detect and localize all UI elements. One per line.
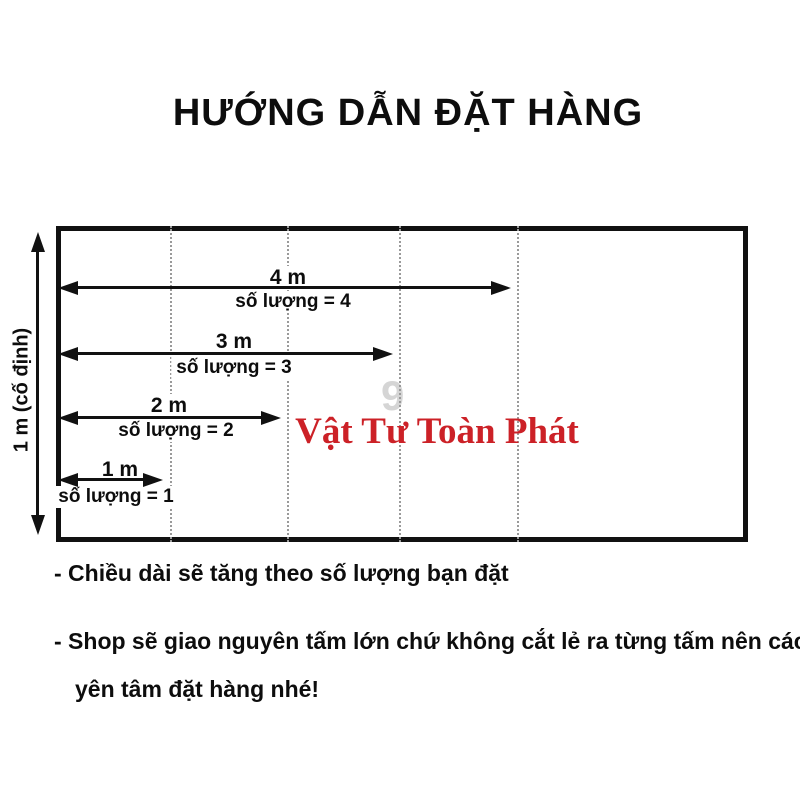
- arrowhead-right-icon: [261, 411, 281, 425]
- page-title: HƯỚNG DẪN ĐẶT HÀNG: [0, 92, 800, 135]
- arrowhead-right-icon: [491, 281, 511, 295]
- brand-watermark: Vật Tư Toàn Phát: [295, 410, 579, 453]
- arrow-shaft: [70, 286, 499, 289]
- note-line-1: - Chiều dài sẽ tăng theo số lượng bạn đặ…: [54, 560, 509, 587]
- arrow-shaft: [70, 352, 381, 355]
- measure-arrow-1m: [58, 473, 163, 487]
- arrow-shaft: [36, 244, 39, 523]
- arrowhead-right-icon: [373, 347, 393, 361]
- note-line-3: yên tâm đặt hàng nhé!: [75, 676, 319, 703]
- height-arrow: [31, 232, 45, 535]
- arrow-shaft: [70, 478, 151, 481]
- note-line-2: - Shop sẽ giao nguyên tấm lớn chứ không …: [54, 628, 800, 655]
- dotted-divider-3m: [399, 226, 401, 542]
- dotted-divider-4m: [517, 226, 519, 542]
- arrowhead-down-icon: [31, 515, 45, 535]
- measure-arrow-4m: [58, 281, 511, 295]
- arrow-shaft: [70, 416, 269, 419]
- measure-quantity-label-1m: số lượng = 1: [53, 486, 178, 508]
- page: HƯỚNG DẪN ĐẶT HÀNG 9 1 m (cố định) 4 m s…: [0, 0, 800, 800]
- measure-arrow-3m: [58, 347, 393, 361]
- arrowhead-right-icon: [143, 473, 163, 487]
- measure-arrow-2m: [58, 411, 281, 425]
